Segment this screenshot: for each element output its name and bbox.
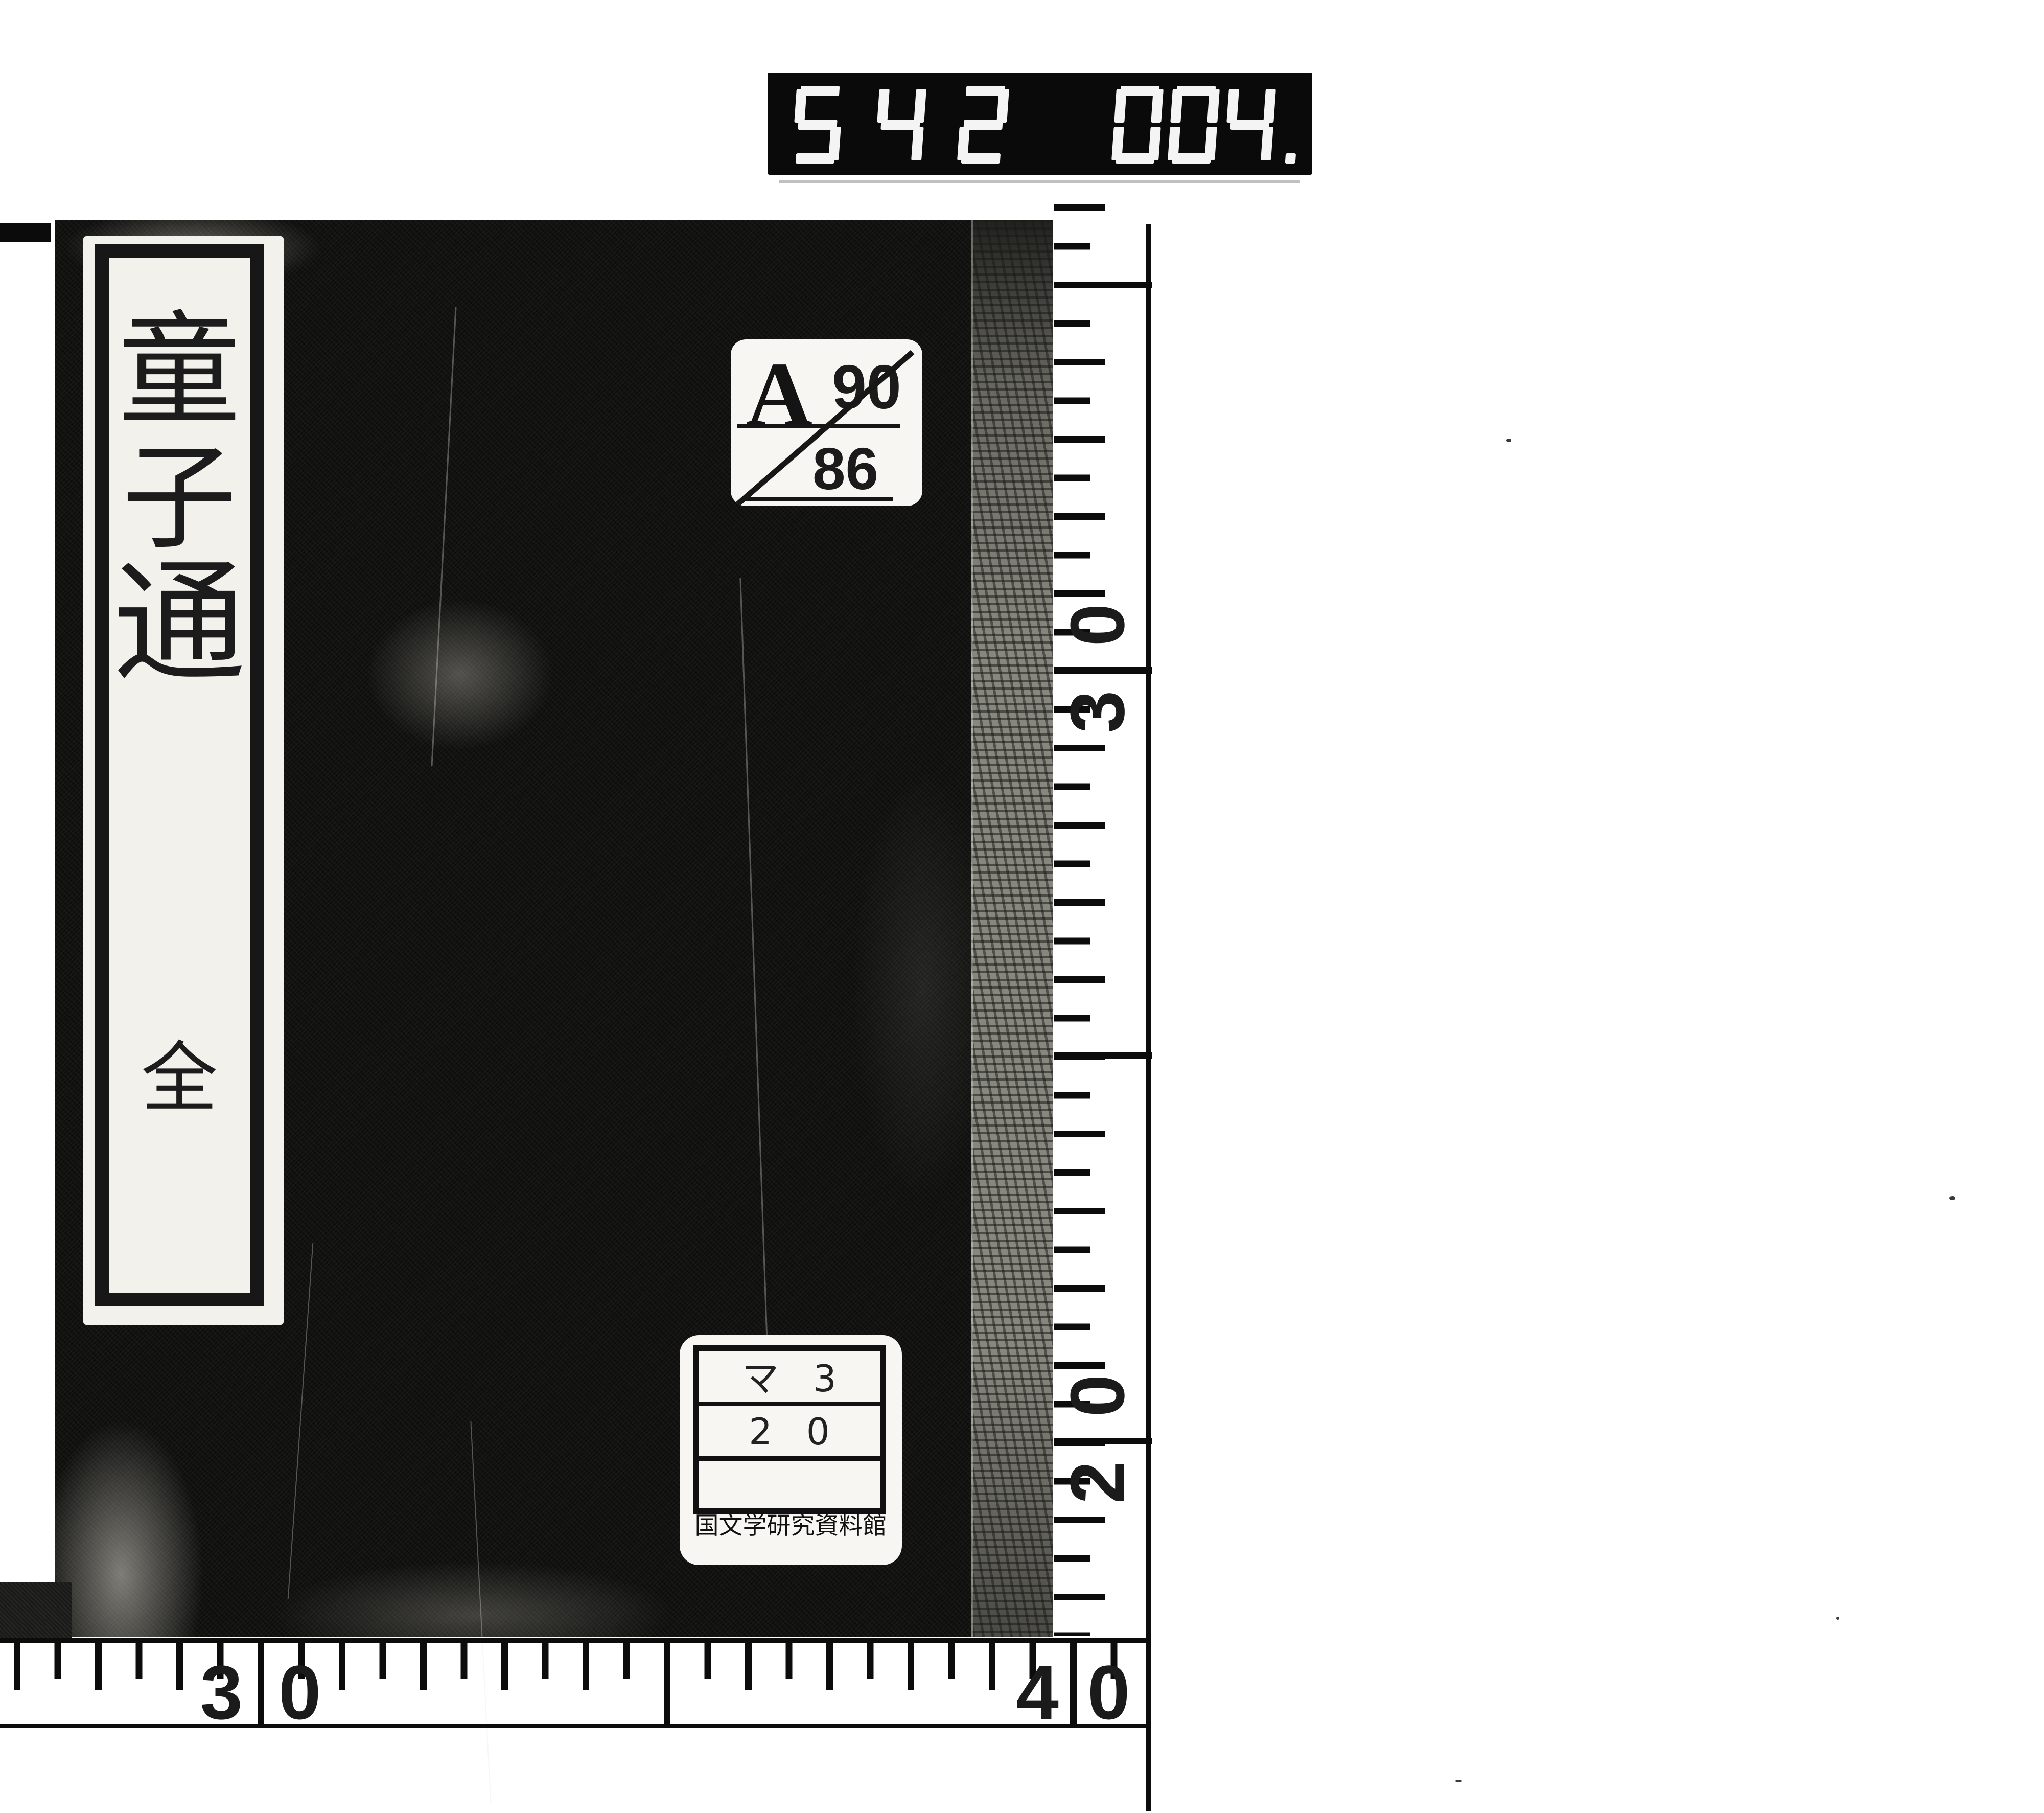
volume-char: 全 [95, 1040, 264, 1117]
title-slip: 童 子 通 全 [83, 236, 284, 1325]
call-number-divider [699, 1456, 880, 1461]
seven-segment-digit [957, 86, 1010, 164]
counter-shadow-line [779, 180, 1300, 183]
classification-number: 86 [812, 439, 878, 498]
seven-segment-digit [874, 86, 927, 164]
cover-crack [739, 578, 771, 1446]
classification-underline-top [737, 424, 900, 428]
scan-edge-shadow [0, 1582, 72, 1638]
call-number-row2: 2 0 [699, 1413, 880, 1450]
book-spine [971, 220, 1053, 1637]
right-ruler-edge-line [1146, 224, 1151, 1811]
dust-speck [1455, 1780, 1462, 1782]
bottom-ruler-label-40: 4 0 [991, 1654, 1155, 1731]
dust-speck [1949, 1196, 1955, 1200]
classification-underline-bottom [741, 497, 893, 501]
seven-segment-digit [1111, 86, 1164, 164]
right-ruler-label-30: 0 3 [1064, 595, 1131, 741]
call-number-box: マ 3 2 0 [693, 1345, 886, 1514]
bottom-ruler-bottom-line [0, 1724, 1151, 1728]
title-char: 子 [95, 441, 264, 556]
cover-crack [288, 1243, 314, 1599]
bottom-ruler-label-30: 3 0 [179, 1654, 342, 1731]
book-cover: 童 子 通 全 A 90 86 マ 3 2 0 国文学研究資料館 [55, 220, 1053, 1637]
cover-crack [470, 1421, 491, 1804]
scan-page: { "counter": { "group1": "542", "group2"… [0, 0, 2044, 1813]
cover-crack [431, 307, 456, 767]
decimal-point [1285, 153, 1296, 164]
title-char: 通 [95, 557, 264, 690]
dust-speck [1836, 1617, 1839, 1620]
bottom-ruler-10cm-tick [664, 1642, 670, 1724]
counter-display [768, 73, 1312, 175]
seven-segment-digit [792, 86, 844, 164]
seven-segment-digit [1168, 86, 1220, 164]
classification-label: A 90 86 [731, 339, 922, 506]
call-number-label: マ 3 2 0 国文学研究資料館 [680, 1335, 902, 1565]
dust-speck [1506, 439, 1511, 442]
scan-edge-mark [0, 223, 51, 242]
call-number-divider [699, 1402, 880, 1406]
counter-left-digits [792, 86, 1010, 164]
seven-segment-digit [1224, 86, 1276, 164]
call-number-row1: マ 3 [699, 1360, 880, 1397]
counter-right-digits [1111, 86, 1301, 164]
right-ruler-5cm-line [1054, 282, 1152, 288]
call-number-institution: 国文学研究資料館 [680, 1513, 902, 1540]
title-char: 童 [95, 309, 264, 432]
right-ruler-5cm-line [1054, 1052, 1152, 1059]
right-ruler-label-20: 0 2 [1064, 1366, 1131, 1512]
